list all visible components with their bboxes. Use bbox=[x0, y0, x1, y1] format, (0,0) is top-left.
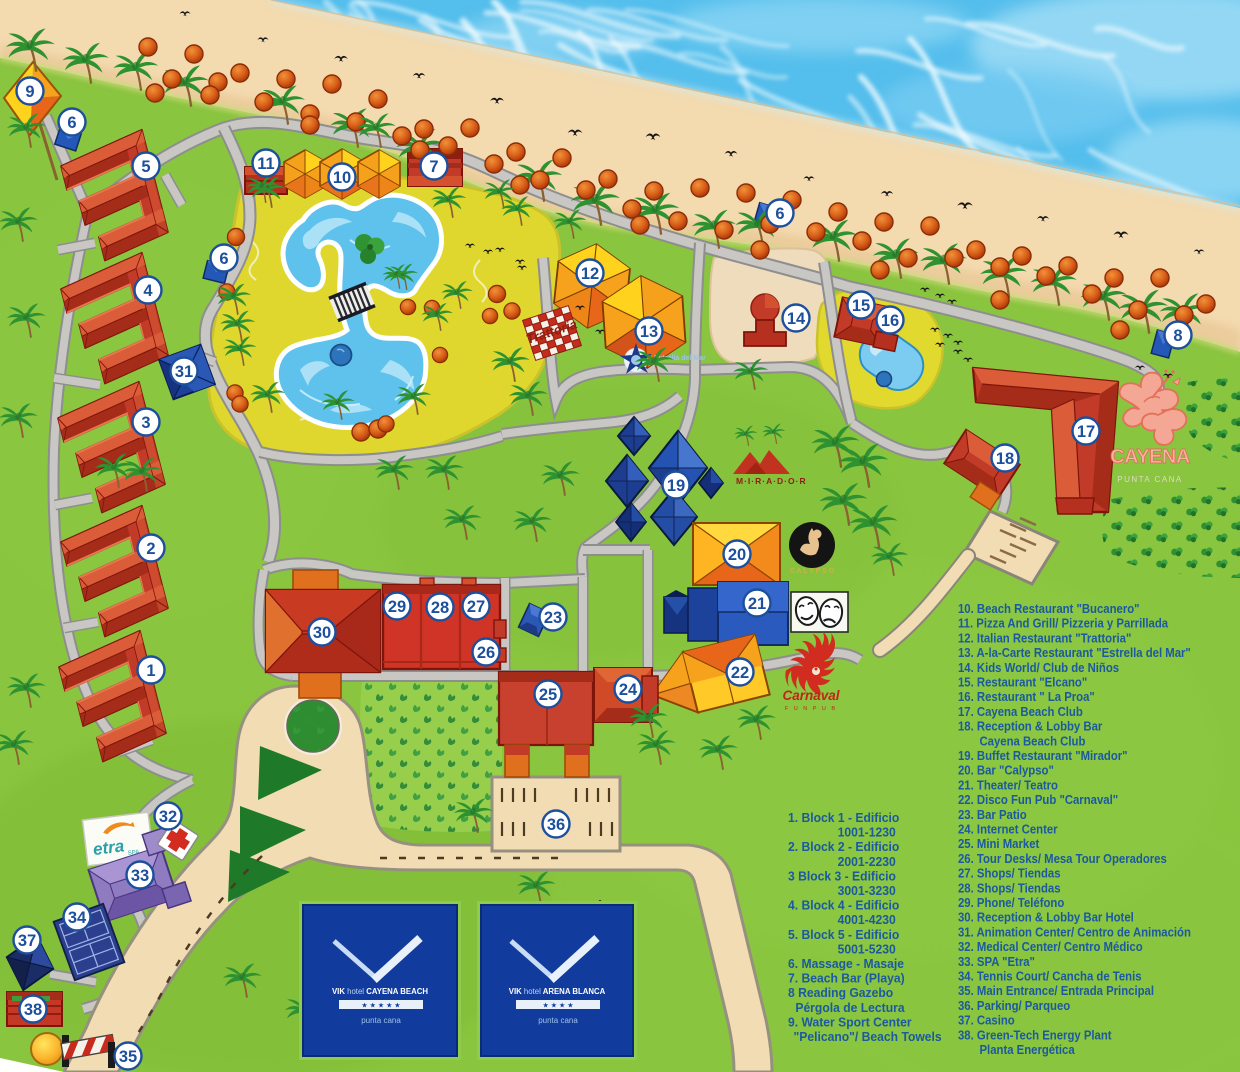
svg-text:34. Tennis Court/ Cancha de Te: 34. Tennis Court/ Cancha de Tenis bbox=[958, 969, 1142, 984]
svg-text:31. Animation Center/ Centro d: 31. Animation Center/ Centro de Animació… bbox=[958, 925, 1191, 940]
svg-text:8 Reading Gazebo: 8 Reading Gazebo bbox=[788, 986, 893, 1001]
svg-text:33: 33 bbox=[131, 867, 149, 885]
svg-text:30: 30 bbox=[313, 624, 331, 642]
svg-text:26. Tour Desks/ Mesa Tour Oper: 26. Tour Desks/ Mesa Tour Operadores bbox=[958, 851, 1167, 866]
svg-text:13: 13 bbox=[640, 323, 658, 341]
svg-text:6. Massage - Masaje: 6. Massage - Masaje bbox=[788, 957, 904, 972]
svg-text:etra: etra bbox=[92, 836, 125, 859]
svg-text:22. Disco Fun Pub "Carnaval": 22. Disco Fun Pub "Carnaval" bbox=[958, 792, 1118, 807]
svg-text:34: 34 bbox=[68, 909, 87, 927]
svg-text:17: 17 bbox=[1077, 423, 1095, 441]
svg-text:10. Beach Restaurant "Bucanero: 10. Beach Restaurant "Bucanero" bbox=[958, 601, 1140, 616]
svg-text:35: 35 bbox=[119, 1048, 137, 1066]
svg-text:38. Green-Tech Energy Plant: 38. Green-Tech Energy Plant bbox=[958, 1028, 1112, 1043]
svg-text:20. Bar "Calypso": 20. Bar "Calypso" bbox=[958, 763, 1054, 778]
svg-text:3: 3 bbox=[141, 414, 150, 432]
svg-text:3001-3230: 3001-3230 bbox=[838, 884, 896, 899]
svg-text:VIK hotel CAYENA BEACH: VIK hotel CAYENA BEACH bbox=[332, 987, 428, 996]
svg-text:Carnaval: Carnaval bbox=[782, 688, 839, 703]
svg-text:1001-1230: 1001-1230 bbox=[838, 825, 896, 840]
svg-text:14. Kids World/ Club de Niños: 14. Kids World/ Club de Niños bbox=[958, 660, 1119, 675]
svg-text:32. Medical Center/ Centro Méd: 32. Medical Center/ Centro Médico bbox=[958, 939, 1143, 954]
svg-text:C A L Y P S O: C A L Y P S O bbox=[790, 568, 835, 575]
svg-text:12: 12 bbox=[581, 265, 599, 283]
svg-text:4: 4 bbox=[143, 282, 153, 300]
svg-text:6: 6 bbox=[67, 114, 76, 132]
svg-text:12. Italian Restaurant "Tratto: 12. Italian Restaurant "Trattoria" bbox=[958, 631, 1131, 646]
svg-text:★ ★ ★ ★ ★: ★ ★ ★ ★ ★ bbox=[361, 1002, 400, 1010]
svg-text:11: 11 bbox=[257, 155, 274, 173]
svg-text:23: 23 bbox=[544, 609, 562, 627]
svg-text:15. Restaurant "Elcano": 15. Restaurant "Elcano" bbox=[958, 675, 1087, 690]
svg-text:13. A-la-Carte Restaurant "Est: 13. A-la-Carte Restaurant "Estrella del … bbox=[958, 645, 1191, 660]
svg-text:16. Restaurant " La Proa": 16. Restaurant " La Proa" bbox=[958, 689, 1095, 704]
svg-text:24: 24 bbox=[619, 681, 638, 699]
svg-text:17. Cayena Beach Club: 17. Cayena Beach Club bbox=[958, 704, 1083, 719]
svg-text:"Pelicano"/ Beach Towels: "Pelicano"/ Beach Towels bbox=[794, 1030, 942, 1045]
svg-text:5001-5230: 5001-5230 bbox=[838, 942, 896, 957]
svg-text:punta cana: punta cana bbox=[361, 1016, 401, 1025]
svg-text:36. Parking/ Parqueo: 36. Parking/ Parqueo bbox=[958, 998, 1071, 1013]
svg-text:37: 37 bbox=[18, 932, 36, 950]
svg-text:Pérgola de Lectura: Pérgola de Lectura bbox=[795, 1000, 905, 1015]
svg-text:1. Block 1 - Edificio: 1. Block 1 - Edificio bbox=[788, 811, 899, 826]
svg-text:35. Main Entrance/ Entrada Pri: 35. Main Entrance/ Entrada Principal bbox=[958, 983, 1154, 998]
svg-text:38: 38 bbox=[24, 1001, 42, 1019]
svg-text:6: 6 bbox=[775, 205, 784, 223]
svg-text:2001-2230: 2001-2230 bbox=[838, 854, 896, 869]
svg-text:20: 20 bbox=[728, 546, 746, 564]
svg-text:21. Theater/ Teatro: 21. Theater/ Teatro bbox=[958, 778, 1058, 793]
svg-text:25. Mini Market: 25. Mini Market bbox=[958, 836, 1039, 851]
svg-text:22: 22 bbox=[731, 664, 749, 682]
svg-text:3 Block 3 - Edificio: 3 Block 3 - Edificio bbox=[788, 869, 896, 884]
svg-text:29: 29 bbox=[388, 598, 406, 616]
svg-text:Cayena Beach Club: Cayena Beach Club bbox=[980, 734, 1086, 749]
svg-text:16: 16 bbox=[881, 312, 899, 330]
svg-text:29. Phone/ Teléfono: 29. Phone/ Teléfono bbox=[958, 895, 1065, 910]
svg-text:37. Casino: 37. Casino bbox=[958, 1013, 1015, 1028]
svg-text:32: 32 bbox=[159, 808, 177, 826]
svg-text:26: 26 bbox=[477, 644, 495, 662]
svg-text:21: 21 bbox=[748, 595, 766, 613]
svg-text:CAYENA: CAYENA bbox=[1110, 446, 1190, 468]
svg-text:9: 9 bbox=[25, 83, 34, 101]
svg-text:7. Beach Bar (Playa): 7. Beach Bar (Playa) bbox=[788, 971, 905, 986]
svg-text:F U N P U B: F U N P U B bbox=[785, 706, 837, 712]
svg-text:28. Shops/ Tiendas: 28. Shops/ Tiendas bbox=[958, 881, 1061, 896]
svg-text:19: 19 bbox=[667, 477, 685, 495]
svg-text:30. Reception & Lobby Bar Hote: 30. Reception & Lobby Bar Hotel bbox=[958, 910, 1134, 925]
svg-text:33. SPA "Etra": 33. SPA "Etra" bbox=[958, 954, 1035, 969]
svg-text:2. Block 2 - Edificio: 2. Block 2 - Edificio bbox=[788, 840, 899, 855]
svg-text:8: 8 bbox=[1173, 327, 1182, 345]
svg-text:Planta Energética: Planta Energética bbox=[980, 1042, 1075, 1057]
svg-text:2: 2 bbox=[146, 540, 155, 558]
svg-text:PUNTA CANA: PUNTA CANA bbox=[1117, 475, 1183, 484]
svg-text:★ ★ ★ ★: ★ ★ ★ ★ bbox=[543, 1002, 574, 1010]
svg-text:28: 28 bbox=[431, 599, 449, 617]
svg-text:5: 5 bbox=[141, 158, 150, 176]
svg-text:9. Water Sport Center: 9. Water Sport Center bbox=[788, 1015, 912, 1030]
svg-text:18: 18 bbox=[996, 450, 1014, 468]
svg-text:4001-4230: 4001-4230 bbox=[838, 913, 896, 928]
svg-text:M·I·R·A·D·O·R: M·I·R·A·D·O·R bbox=[736, 476, 807, 486]
svg-text:11. Pizza And Grill/ Pizzeria: 11. Pizza And Grill/ Pizzeria y Parrilla… bbox=[958, 616, 1168, 631]
svg-text:VIK hotel ARENA BLANCA: VIK hotel ARENA BLANCA bbox=[509, 987, 606, 996]
svg-text:4. Block 4 - Edificio: 4. Block 4 - Edificio bbox=[788, 898, 899, 913]
svg-text:27: 27 bbox=[467, 598, 485, 616]
svg-text:14: 14 bbox=[787, 310, 806, 328]
svg-text:1: 1 bbox=[146, 662, 155, 680]
svg-text:36: 36 bbox=[547, 816, 565, 834]
svg-text:10: 10 bbox=[333, 169, 351, 187]
svg-text:19. Buffet Restaurant "Mirador: 19. Buffet Restaurant "Mirador" bbox=[958, 748, 1128, 763]
svg-text:31: 31 bbox=[175, 363, 193, 381]
svg-text:18. Reception & Lobby Bar: 18. Reception & Lobby Bar bbox=[958, 719, 1102, 734]
svg-text:25: 25 bbox=[539, 686, 557, 704]
svg-text:6: 6 bbox=[219, 250, 228, 268]
svg-text:7: 7 bbox=[429, 158, 438, 176]
svg-text:23. Bar Patio: 23. Bar Patio bbox=[958, 807, 1027, 822]
svg-text:punta cana: punta cana bbox=[538, 1016, 578, 1025]
svg-text:15: 15 bbox=[852, 297, 870, 315]
svg-text:24. Internet Center: 24. Internet Center bbox=[958, 822, 1058, 837]
svg-text:5. Block 5 - Edificio: 5. Block 5 - Edificio bbox=[788, 927, 899, 942]
svg-text:27. Shops/ Tiendas: 27. Shops/ Tiendas bbox=[958, 866, 1061, 881]
